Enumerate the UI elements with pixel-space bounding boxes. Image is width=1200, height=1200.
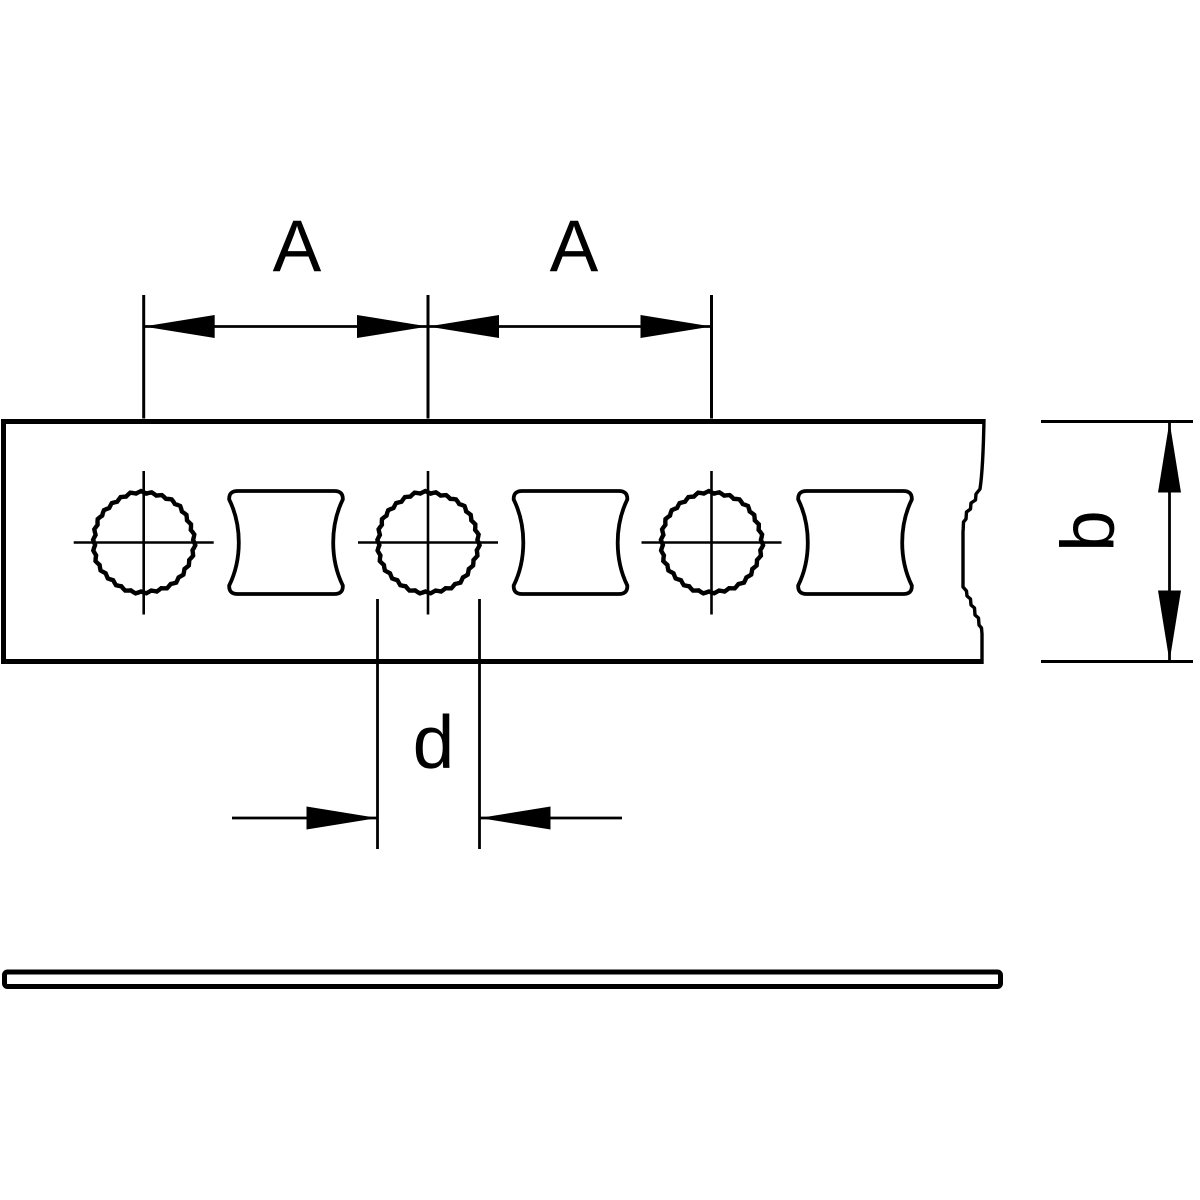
svg-text:b: b bbox=[1046, 510, 1130, 552]
svg-text:d: d bbox=[413, 700, 455, 784]
svg-text:A: A bbox=[550, 207, 599, 288]
svg-text:A: A bbox=[273, 207, 322, 288]
